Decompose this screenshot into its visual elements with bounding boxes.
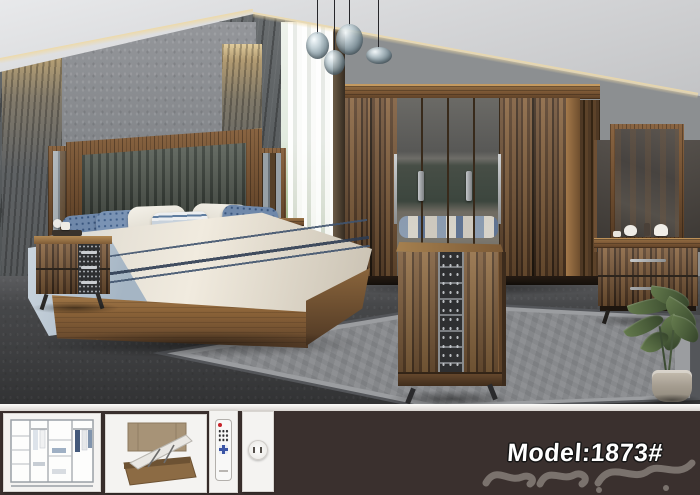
showroom-scene — [0, 0, 700, 410]
remote-label-line — [219, 470, 228, 472]
chest-bottom-rail — [398, 372, 502, 386]
footer-bar: Model:1873# — [0, 411, 700, 495]
lamp-cord — [317, 0, 318, 34]
nightstand-floor-shadow — [30, 302, 120, 314]
tallboy-chest — [394, 240, 506, 410]
product-photo: Model:1873# — [0, 0, 700, 495]
chest-leg — [405, 388, 416, 405]
wardrobe-wood-doors-right — [500, 98, 566, 276]
wardrobe-handle — [418, 171, 424, 201]
socket-icon — [248, 440, 268, 460]
dresser-top-deck — [594, 238, 700, 248]
wardrobe-interior-diagram-icon — [4, 414, 100, 491]
bed-lift-storage-diagram-icon — [106, 415, 206, 492]
thumbnail-wall-socket — [243, 412, 273, 491]
lamp-cord — [378, 0, 379, 49]
remote-control-icon — [216, 420, 231, 480]
lamp-cord — [334, 0, 335, 52]
thumbnail-bed-lift-storage — [106, 415, 206, 492]
mesh-handle — [81, 281, 97, 284]
footer-divider-line — [0, 404, 700, 411]
lamp-cord — [349, 0, 350, 26]
socket-slot — [260, 447, 262, 453]
chest-metal-strip — [438, 252, 464, 386]
remote-power-dot — [218, 423, 222, 427]
wardrobe-corner-stile — [566, 98, 580, 278]
nightstand-top — [34, 236, 112, 244]
pendant-lamp-glass-globe — [324, 50, 345, 75]
wardrobe-handle — [466, 171, 472, 201]
decor-cake-dome — [654, 224, 668, 236]
decor-bottle — [644, 223, 650, 236]
pendant-lamp-glass-globe — [336, 24, 363, 55]
thumbnail-wardrobe-interior — [4, 414, 100, 491]
model-number-label: Model:1873# — [489, 439, 681, 468]
potted-plant — [620, 286, 700, 410]
mesh-handle — [81, 266, 97, 269]
door-shading — [500, 98, 566, 276]
decor-teapot — [624, 225, 637, 236]
nightstand-left — [34, 226, 114, 312]
chest-leg — [487, 384, 498, 401]
handle-strip — [394, 154, 397, 224]
nightstand-mesh-strip — [78, 244, 100, 294]
remote-nav-pad — [219, 445, 228, 454]
decor-cup — [613, 231, 621, 237]
thumbnail-remote-control — [210, 411, 237, 492]
wardrobe-top-frame — [345, 84, 600, 99]
socket-slot — [253, 447, 255, 453]
handle-strip — [498, 154, 501, 224]
remote-button-grid — [218, 429, 229, 443]
nav-pad-horizontal — [219, 448, 228, 451]
dresser-mirror-glass — [615, 129, 679, 237]
pendant-lamp-glass-disc — [366, 47, 392, 64]
mesh-handle — [81, 251, 97, 254]
bed-floor-shadow — [30, 330, 370, 358]
decor-cup — [61, 222, 70, 230]
